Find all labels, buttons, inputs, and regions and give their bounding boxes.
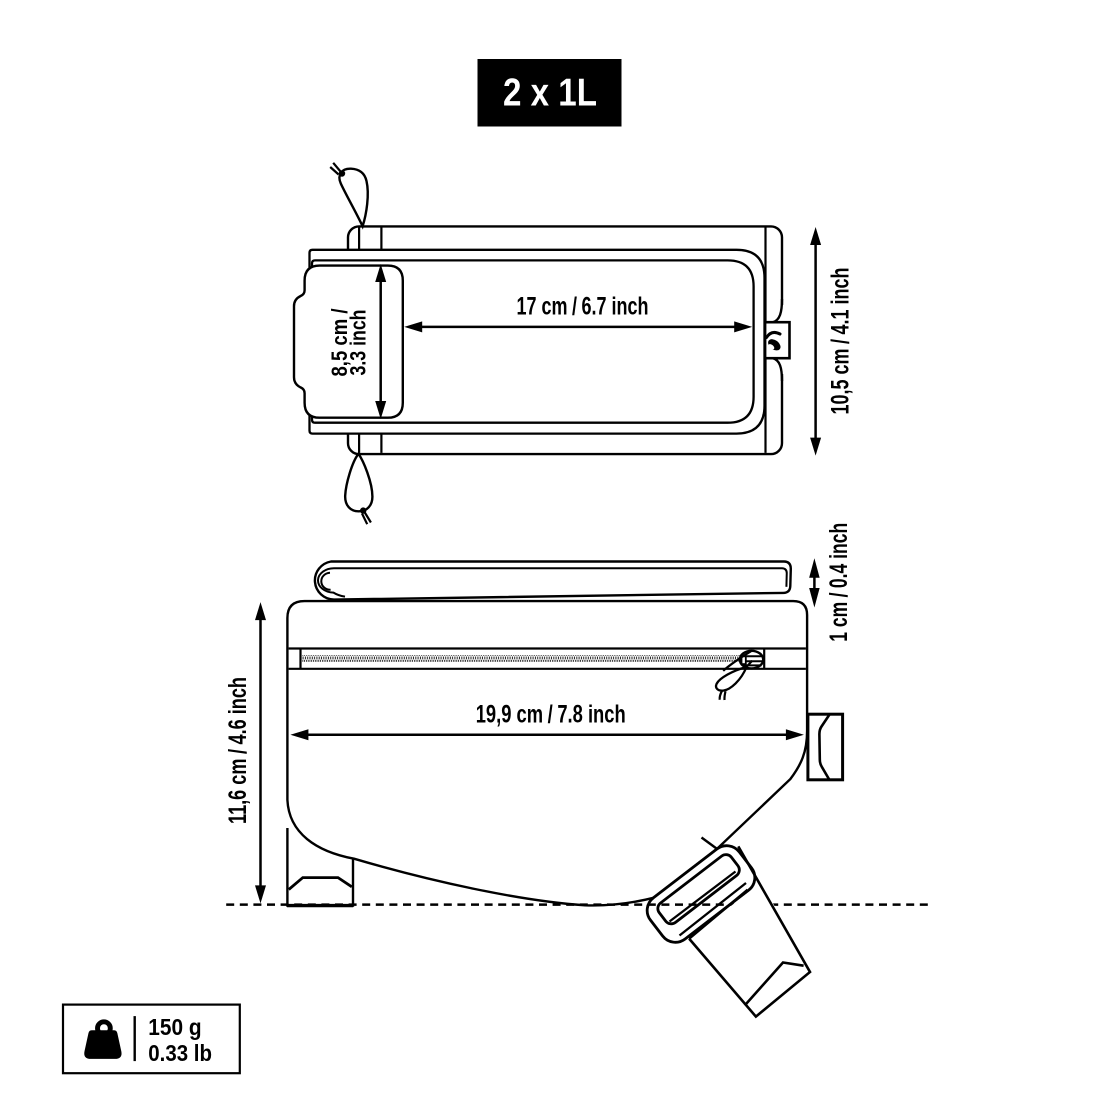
svg-text:19,9 cm / 7.8 inch: 19,9 cm / 7.8 inch [476, 701, 626, 729]
svg-text:1 cm / 0.4 inch: 1 cm / 0.4 inch [825, 523, 853, 642]
svg-text:10,5 cm / 4.1 inch: 10,5 cm / 4.1 inch [827, 268, 855, 415]
svg-text:0.33 lb: 0.33 lb [148, 1040, 212, 1066]
svg-text:11,6 cm / 4.6 inch: 11,6 cm / 4.6 inch [224, 677, 252, 824]
svg-text:17 cm / 6.7 inch: 17 cm / 6.7 inch [517, 293, 649, 321]
svg-text:2 x 1L: 2 x 1L [503, 72, 597, 115]
svg-text:150 g: 150 g [148, 1014, 201, 1040]
svg-text:3.3 inch: 3.3 inch [345, 310, 370, 376]
